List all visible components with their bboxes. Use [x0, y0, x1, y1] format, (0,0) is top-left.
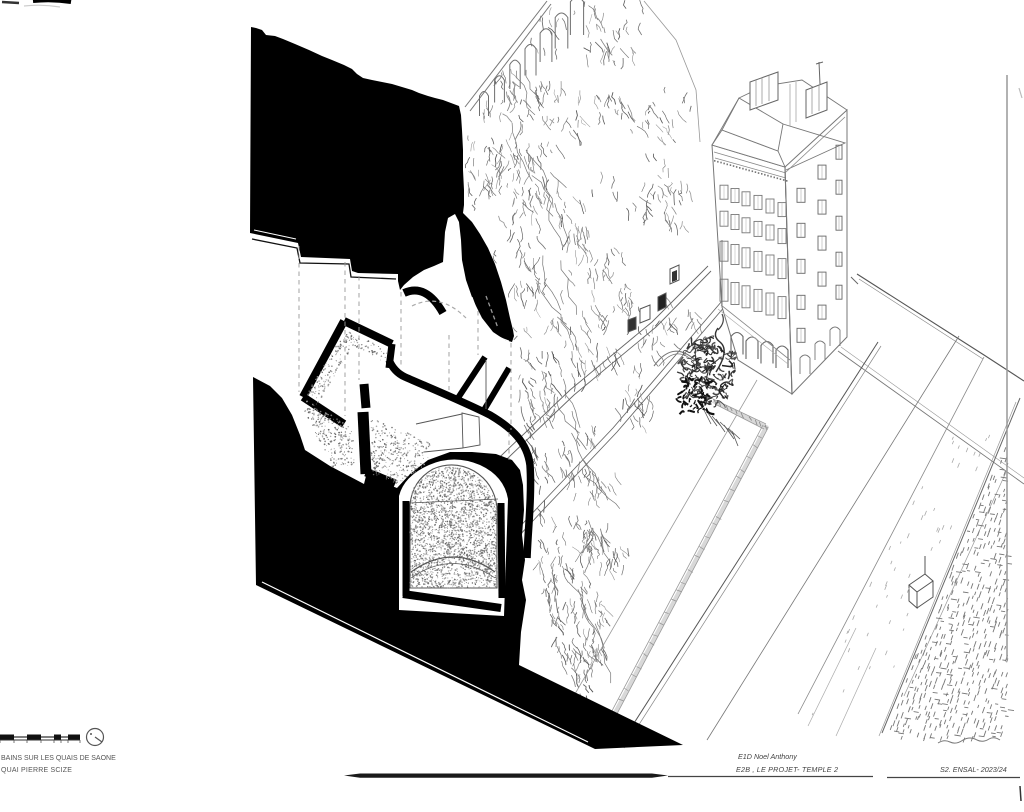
svg-text:QUAI PIERRE SCIZE: QUAI PIERRE SCIZE: [1, 767, 72, 774]
svg-text:E1D Noel Anthony: E1D Noel Anthony: [738, 752, 797, 761]
svg-text:BAINS SUR LES QUAIS DE SAONE: BAINS SUR LES QUAIS DE SAONE: [1, 755, 116, 762]
svg-text:E2B , LE PROJET- TEMPLE 2: E2B , LE PROJET- TEMPLE 2: [736, 765, 838, 774]
svg-text:S2. ENSAL- 2023/24: S2. ENSAL- 2023/24: [940, 765, 1007, 774]
